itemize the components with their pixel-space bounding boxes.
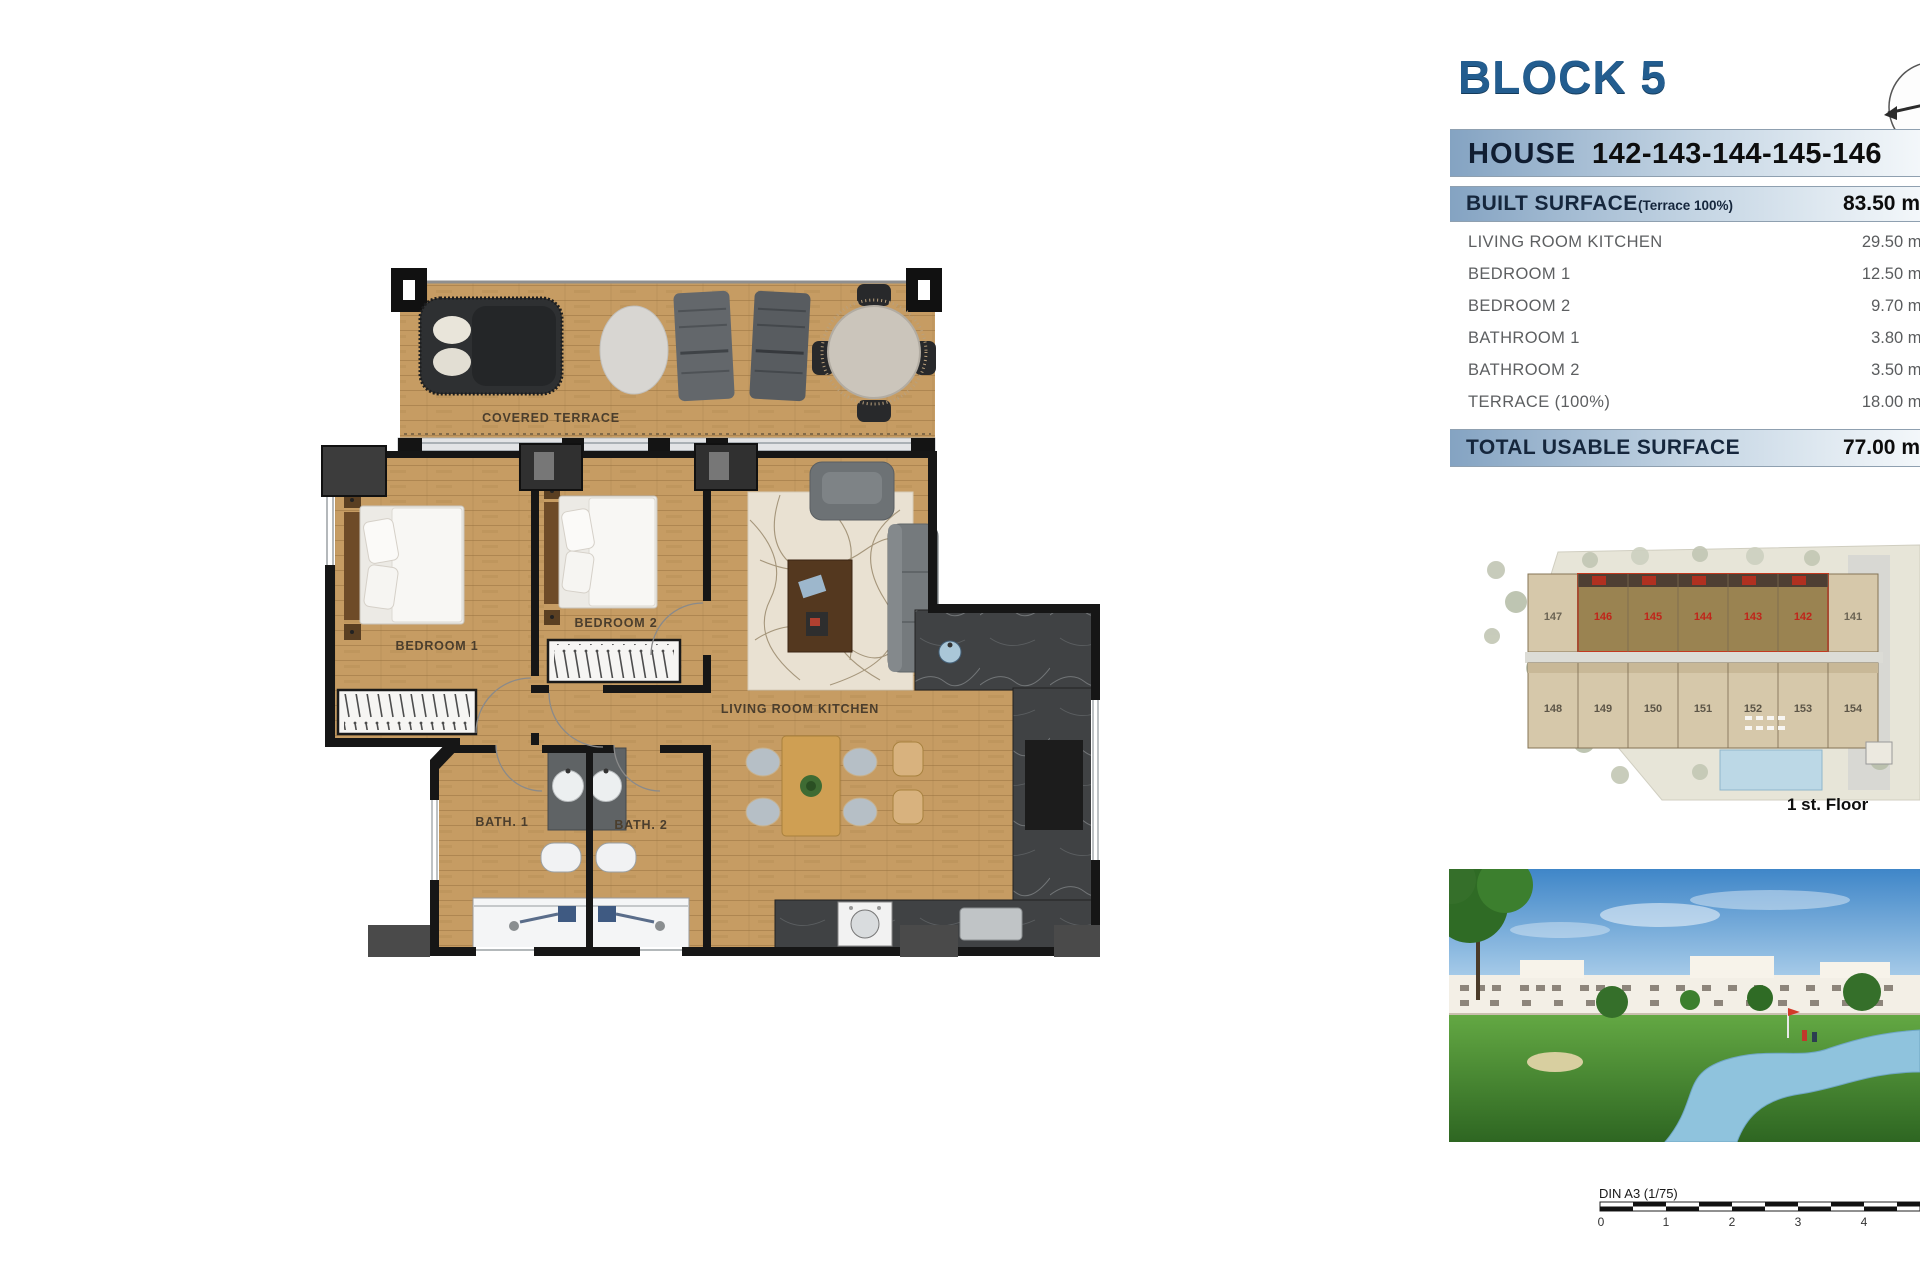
wardrobe-1 xyxy=(338,690,476,734)
bedroom2-label: BEDROOM 2 xyxy=(575,616,658,630)
scale-bar-label: DIN A3 (1/75) xyxy=(1599,1186,1678,1201)
house-bar: HOUSE 142-143-144-145-146 xyxy=(1450,129,1920,177)
table-row: BATHROOM 2 3.50 m² xyxy=(1450,361,1920,385)
total-surface-bar: TOTAL USABLE SURFACE 77.00 m² xyxy=(1450,429,1920,467)
row-value: 3.80 m² xyxy=(1871,329,1920,348)
built-surface-note: (Terrace 100%) xyxy=(1638,198,1733,213)
row-value: 3.50 m² xyxy=(1871,361,1920,380)
floor-plan xyxy=(322,268,1100,957)
row-label: LIVING ROOM KITCHEN xyxy=(1468,233,1663,252)
row-label: BATHROOM 2 xyxy=(1468,361,1580,380)
row-value: 12.50 m² xyxy=(1862,265,1920,284)
total-surface-label: TOTAL USABLE SURFACE xyxy=(1466,436,1740,460)
scale-bar: 0 1 2 3 4 xyxy=(1598,1202,1920,1229)
property-photo xyxy=(1428,856,1920,1142)
scale-tick: 4 xyxy=(1861,1215,1868,1229)
bed-2 xyxy=(544,484,657,625)
row-value: 9.70 m² xyxy=(1871,297,1920,316)
page-title: BLOCK 5 xyxy=(1458,50,1667,104)
coffee-table xyxy=(788,560,852,652)
unit-number: 143 xyxy=(1744,611,1762,623)
terrace-post-left xyxy=(391,268,427,312)
row-value: 18.00 m² xyxy=(1862,393,1920,412)
unit-number: 150 xyxy=(1644,703,1662,715)
total-surface-value: 77.00 m² xyxy=(1843,436,1920,460)
bedroom1-label: BEDROOM 1 xyxy=(396,639,479,653)
scale-tick: 3 xyxy=(1795,1215,1802,1229)
site-bottom-row: 148 149 150 151 152 153 154 xyxy=(1528,663,1878,748)
house-label: HOUSE xyxy=(1468,138,1576,171)
bath2-label: BATH. 2 xyxy=(614,818,667,832)
house-numbers: 142-143-144-145-146 xyxy=(1592,138,1882,171)
covered-terrace-label: COVERED TERRACE xyxy=(482,411,620,425)
unit-number: 145 xyxy=(1644,611,1662,623)
armchair xyxy=(810,462,894,520)
table-row: BEDROOM 2 9.70 m² xyxy=(1450,297,1920,321)
row-value: 29.50 m² xyxy=(1862,233,1920,252)
built-surface-bar: BUILT SURFACE (Terrace 100%) 83.50 m² xyxy=(1450,186,1920,222)
site-top-row: 147 146 145 144 143 142 141 xyxy=(1528,574,1878,652)
scale-tick: 0 xyxy=(1598,1215,1605,1229)
unit-number: 146 xyxy=(1594,611,1612,623)
scale-tick: 2 xyxy=(1729,1215,1736,1229)
unit-number: 152 xyxy=(1744,703,1762,715)
unit-number: 141 xyxy=(1844,611,1862,623)
table-row: TERRACE (100%) 18.00 m² xyxy=(1450,393,1920,417)
row-label: BEDROOM 2 xyxy=(1468,297,1571,316)
unit-number: 153 xyxy=(1794,703,1812,715)
bed-1 xyxy=(344,492,464,640)
bath1-label: BATH. 1 xyxy=(475,815,528,829)
site-plan: 147 146 145 144 143 142 141 148 149 150 xyxy=(1484,545,1920,800)
terrace-rug xyxy=(600,306,668,394)
floorplan-sheet: 147 146 145 144 143 142 141 148 149 150 xyxy=(0,0,1920,1280)
terrace-sofa xyxy=(420,298,562,394)
sun-lounger-1 xyxy=(673,291,735,402)
site-plan-caption: 1 st. Floor xyxy=(1787,795,1868,815)
row-label: BEDROOM 1 xyxy=(1468,265,1571,284)
row-label: BATHROOM 1 xyxy=(1468,329,1580,348)
row-label: TERRACE (100%) xyxy=(1468,393,1610,412)
table-row: BATHROOM 1 3.80 m² xyxy=(1450,329,1920,353)
wardrobe-2 xyxy=(548,640,680,682)
terrace-post-right xyxy=(906,268,942,312)
unit-number: 151 xyxy=(1694,703,1712,715)
unit-number: 144 xyxy=(1694,611,1713,623)
table-row: LIVING ROOM KITCHEN 29.50 m² xyxy=(1450,233,1920,257)
built-surface-label: BUILT SURFACE xyxy=(1466,192,1638,216)
covered-terrace-room xyxy=(391,268,942,438)
built-surface-value: 83.50 m² xyxy=(1843,192,1920,216)
living-room-kitchen-label: LIVING ROOM KITCHEN xyxy=(721,702,879,716)
table-row: BEDROOM 1 12.50 m² xyxy=(1450,265,1920,289)
scale-tick: 1 xyxy=(1663,1215,1670,1229)
unit-number: 147 xyxy=(1544,611,1562,623)
sun-lounger-2 xyxy=(749,291,811,402)
washing-machine xyxy=(838,902,892,946)
unit-number: 148 xyxy=(1544,703,1562,715)
unit-number: 149 xyxy=(1594,703,1612,715)
unit-number: 154 xyxy=(1844,703,1863,715)
site-road xyxy=(1525,652,1883,663)
unit-number: 142 xyxy=(1794,611,1812,623)
